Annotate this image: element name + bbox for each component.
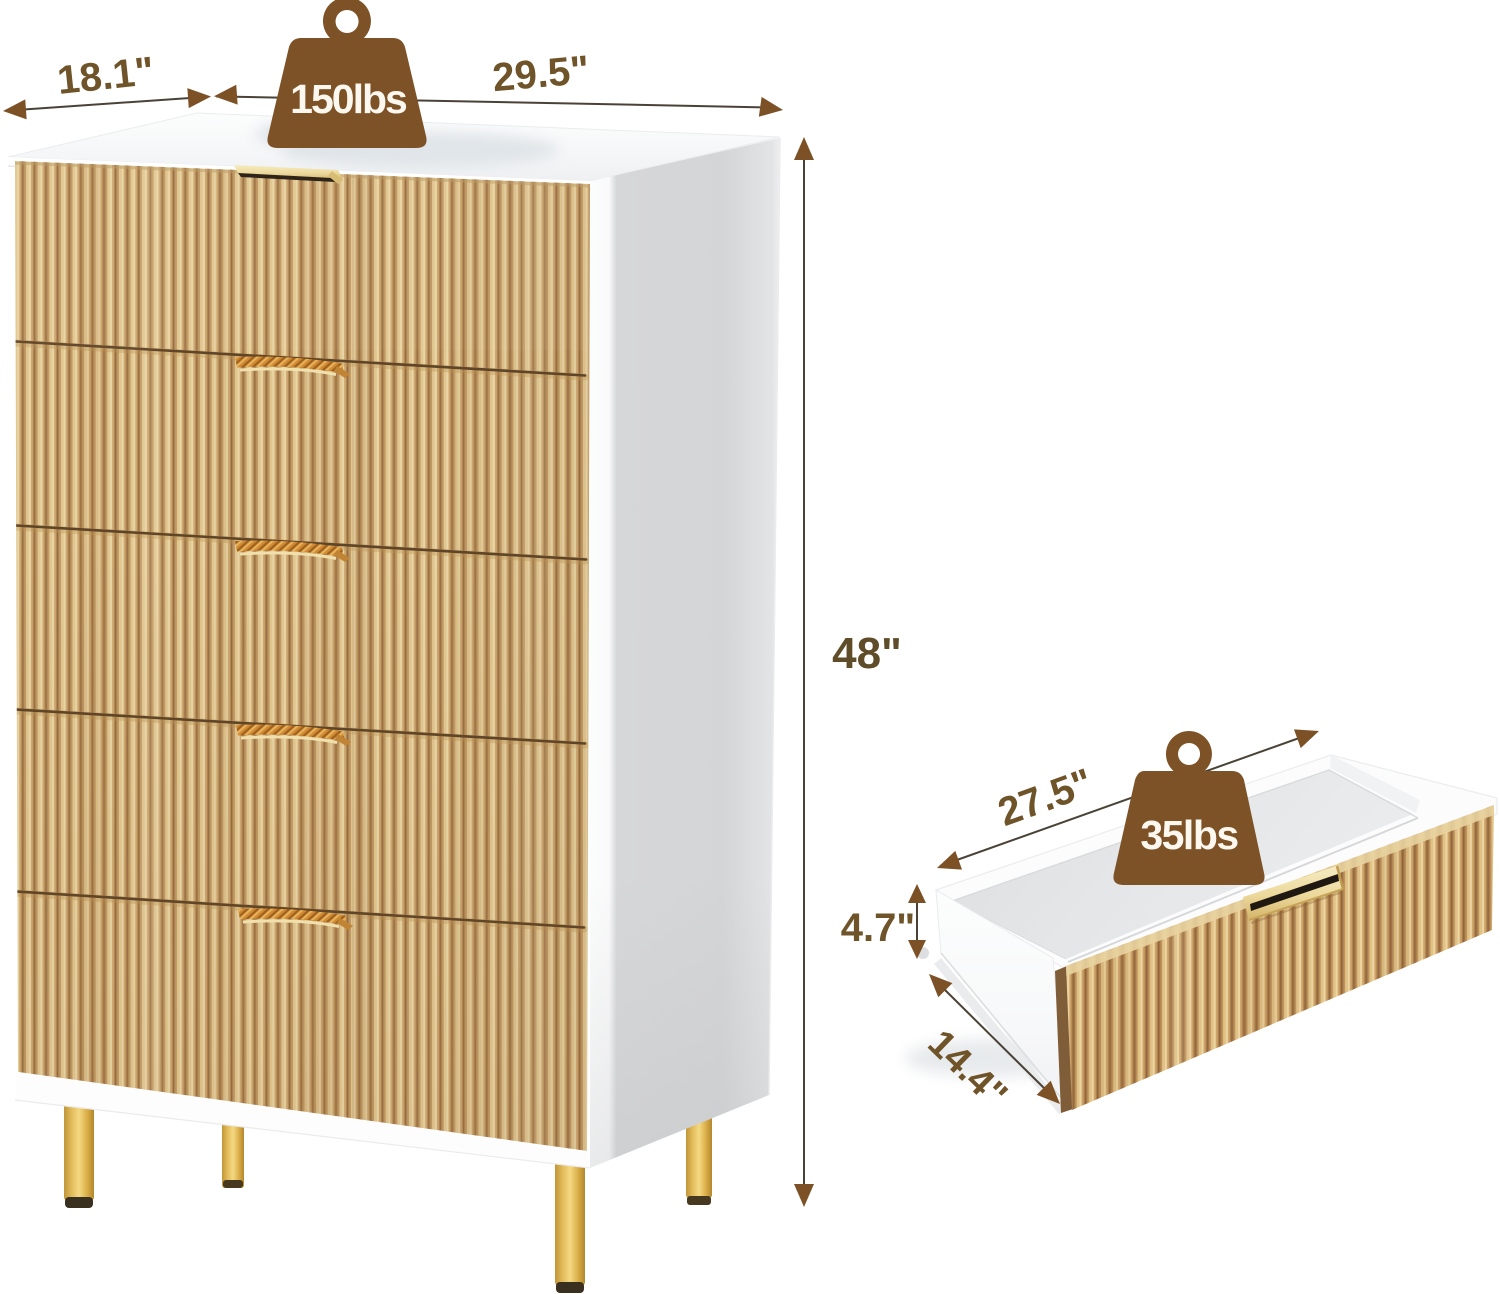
svg-text:150lbs: 150lbs xyxy=(290,76,407,122)
svg-text:4.7": 4.7" xyxy=(841,906,916,950)
svg-text:48": 48" xyxy=(832,629,902,678)
svg-text:29.5": 29.5" xyxy=(491,48,591,100)
svg-text:35lbs: 35lbs xyxy=(1140,812,1238,858)
